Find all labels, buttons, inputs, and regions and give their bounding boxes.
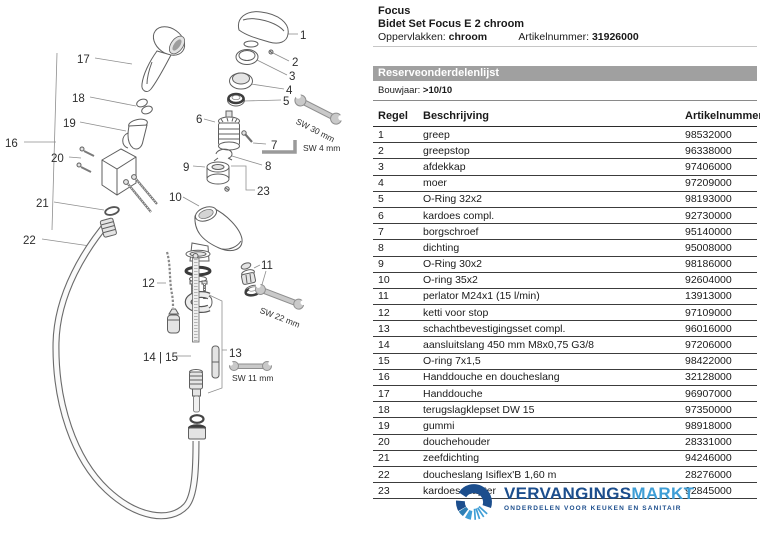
tool-label-sw4: SW 4 mm <box>303 143 340 153</box>
part-oring-cap <box>228 94 245 106</box>
construction-year-value: >10/10 <box>423 85 452 96</box>
logo-wordmark-primary: VERVANGINGS <box>504 484 631 503</box>
part-chain-and-stopper <box>167 252 180 333</box>
construction-year-line: Bouwjaar: >10/10 <box>373 81 757 101</box>
callout-label: 8 <box>265 161 271 173</box>
callout-label: 1 <box>300 30 306 42</box>
callout-label: 10 <box>169 192 182 204</box>
part-hose-nut <box>189 425 206 439</box>
product-title: Bidet Set Focus E 2 chroom <box>378 18 757 31</box>
table-row: 4moer97209000 <box>373 175 757 191</box>
part-horseshoe-escutcheon <box>188 295 212 310</box>
logo-tagline: ONDERDELEN VOOR KEUKEN EN SANITAIR <box>504 505 694 512</box>
table-row: 20douchehouder28331000 <box>373 434 757 450</box>
vervangingsmarkt-logo: VERVANGINGSMARKT ONDERDELEN VOOR KEUKEN … <box>453 479 694 525</box>
spare-parts-sheet: 1 2 3 4 5 6 7 8 9 10 11 12 13 14 | 15 16… <box>0 0 760 536</box>
part-seal-clip <box>214 149 232 161</box>
table-row: 16Handdouche en doucheslang32128000 <box>373 369 757 385</box>
table-row: 1greep98532000 <box>373 127 757 143</box>
table-row: 6kardoes compl.92730000 <box>373 207 757 223</box>
callout-label: 5 <box>283 96 289 108</box>
table-row: 21zeefdichting94246000 <box>373 450 757 466</box>
part-fixation-rod <box>212 346 219 378</box>
callout-label: 22 <box>23 235 36 247</box>
part-holder-bracket <box>77 147 157 212</box>
tool-size-labels: SW 30 mm SW 4 mm SW 22 mm SW 11 mm <box>232 116 340 383</box>
part-check-valve-washers <box>136 98 154 116</box>
logo-wordmark-secondary: MARKT <box>631 484 694 503</box>
table-row: 5O-Ring 32x298193000 <box>373 191 757 207</box>
callout-label: 18 <box>72 93 85 105</box>
part-cartridge <box>219 111 240 150</box>
column-header-beschrijving: Beschrijving <box>423 110 685 127</box>
article-number-value: 31926000 <box>592 31 639 43</box>
callout-label: 6 <box>196 114 202 126</box>
callout-label: 12 <box>142 278 155 290</box>
callout-label: 20 <box>51 153 64 165</box>
table-row: 10O-ring 35x292604000 <box>373 272 757 288</box>
table-row: 7borgschroef95140000 <box>373 224 757 240</box>
column-header-artikelnummer: Artikelnummer <box>685 110 757 127</box>
series-title: Focus <box>378 5 757 18</box>
leader-lines <box>24 34 298 393</box>
product-meta: Oppervlakken: chroom Artikelnummer: 3192… <box>378 31 757 44</box>
part-cover-ring <box>236 50 258 65</box>
tool-label-sw22: SW 22 mm <box>258 305 301 329</box>
construction-year-label: Bouwjaar: <box>378 85 420 96</box>
vervangingsmarkt-logo-icon <box>453 479 495 525</box>
exploded-diagram-svg: 1 2 3 4 5 6 7 8 9 10 11 12 13 14 | 15 16… <box>0 0 373 536</box>
section-title-bar: Reserveonderdelenlijst <box>373 66 757 81</box>
part-handle <box>238 12 288 47</box>
table-row: 13schachtbevestigingsset compl.96016000 <box>373 321 757 337</box>
table-row: 12ketti voor stop97109000 <box>373 305 757 321</box>
part-sieve-seal <box>104 206 119 217</box>
callout-label: 3 <box>289 71 295 83</box>
callout-label: 7 <box>271 140 277 152</box>
allen-key-sw4-icon <box>262 140 295 152</box>
part-nut <box>230 73 253 89</box>
article-number-label: Artikelnummer: <box>518 31 589 43</box>
part-hand-shower <box>142 21 190 92</box>
table-row: 14aansluitslang 450 mm M8x0,75 G3/897206… <box>373 337 757 353</box>
table-row: 3afdekkap97406000 <box>373 159 757 175</box>
part-cartridge-adapter <box>207 162 229 191</box>
document-header: Focus Bidet Set Focus E 2 chroom Oppervl… <box>373 0 757 44</box>
part-oring-small <box>191 415 204 423</box>
callout-label: 17 <box>77 54 90 66</box>
callout-label: 11 <box>261 260 273 272</box>
header-divider <box>373 46 757 47</box>
callout-label: 23 <box>257 186 270 198</box>
part-shaft-connector <box>190 370 203 413</box>
parts-panel: Focus Bidet Set Focus E 2 chroom Oppervl… <box>373 0 757 536</box>
tool-label-sw11: SW 11 mm <box>232 373 273 383</box>
tool-label-sw30: SW 30 mm <box>294 116 336 144</box>
callout-label: 16 <box>5 138 18 150</box>
table-row: 17Handdouche96907000 <box>373 386 757 402</box>
part-pull-rod <box>193 254 200 343</box>
callout-label: 2 <box>292 57 298 69</box>
table-row: 8dichting95008000 <box>373 240 757 256</box>
surface-label: Oppervlakken: <box>378 31 446 43</box>
callout-label: 9 <box>183 162 189 174</box>
parts-table: Regel Beschrijving Artikelnummer 1greep9… <box>373 110 757 499</box>
logo-wordmark: VERVANGINGSMARKT <box>504 485 694 502</box>
callout-label: 21 <box>36 198 49 210</box>
table-row: 19gummi98918000 <box>373 418 757 434</box>
table-row: 15O-ring 7x1,598422000 <box>373 353 757 369</box>
wrench-sw11-icon <box>229 361 273 370</box>
part-grub-screw <box>269 50 273 54</box>
callout-label: 19 <box>63 118 76 130</box>
table-row: 9O-Ring 30x298186000 <box>373 256 757 272</box>
part-locking-screw <box>242 131 252 142</box>
callout-label: 14 | 15 <box>143 352 178 364</box>
table-header-row: Regel Beschrijving Artikelnummer <box>373 110 757 127</box>
table-row: 11perlator M24x1 (15 l/min)13913000 <box>373 288 757 304</box>
part-shower-hose <box>56 221 196 516</box>
surface-value: chroom <box>449 31 488 43</box>
part-shower-holder-cone <box>123 118 148 149</box>
callout-label: 13 <box>229 348 242 360</box>
column-header-regel: Regel <box>373 110 423 127</box>
logo-text: VERVANGINGSMARKT ONDERDELEN VOOR KEUKEN … <box>504 479 694 512</box>
exploded-diagram: 1 2 3 4 5 6 7 8 9 10 11 12 13 14 | 15 16… <box>0 0 373 536</box>
table-row: 18terugslagklepset DW 1597350000 <box>373 402 757 418</box>
table-row: 2greepstop96338000 <box>373 143 757 159</box>
